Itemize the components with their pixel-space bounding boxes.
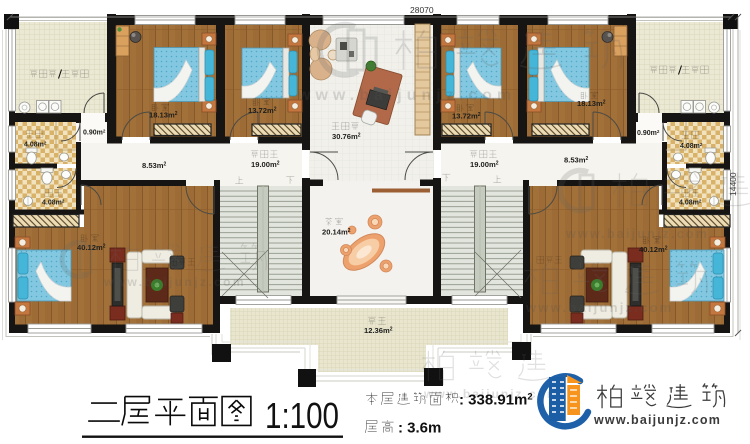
svg-text:20.14m2: 20.14m2 — [322, 228, 351, 237]
svg-text:12.36m2: 12.36m2 — [364, 326, 393, 335]
svg-text:8.53m2: 8.53m2 — [564, 156, 589, 165]
svg-text:: 3.6m: : 3.6m — [398, 420, 441, 437]
svg-text:14400: 14400 — [728, 172, 738, 196]
svg-text:30.76m2: 30.76m2 — [332, 132, 361, 141]
svg-text:40.12m2: 40.12m2 — [639, 245, 668, 254]
svg-text:0.90m2: 0.90m2 — [83, 128, 106, 136]
svg-text:www.baijunjz.com: www.baijunjz.com — [297, 87, 516, 104]
svg-text:www.baijunjz.com: www.baijunjz.com — [565, 227, 709, 241]
svg-text:28070: 28070 — [410, 5, 434, 15]
svg-text:18.13m2: 18.13m2 — [577, 99, 606, 108]
svg-text:www.baijunjz.com: www.baijunjz.com — [593, 413, 721, 427]
svg-text:www.baijunjz.com: www.baijunjz.com — [103, 275, 246, 289]
svg-text:4.08m2: 4.08m2 — [680, 142, 703, 150]
svg-text:: 338.91m2: : 338.91m2 — [459, 392, 533, 409]
svg-text:4.08m2: 4.08m2 — [42, 198, 65, 206]
svg-text:www.baijunjz.com: www.baijunjz.com — [525, 300, 673, 315]
svg-text:13.72m2: 13.72m2 — [248, 106, 277, 115]
svg-text:4.08m2: 4.08m2 — [24, 140, 47, 148]
svg-text:18.13m2: 18.13m2 — [149, 111, 178, 120]
svg-text:19.00m2: 19.00m2 — [251, 160, 280, 169]
svg-text:19.00m2: 19.00m2 — [470, 160, 499, 169]
svg-text:0.90m2: 0.90m2 — [637, 129, 660, 137]
svg-text:13.72m2: 13.72m2 — [452, 112, 481, 121]
svg-text:8.53m2: 8.53m2 — [142, 161, 167, 170]
svg-text:1:100: 1:100 — [265, 395, 339, 436]
